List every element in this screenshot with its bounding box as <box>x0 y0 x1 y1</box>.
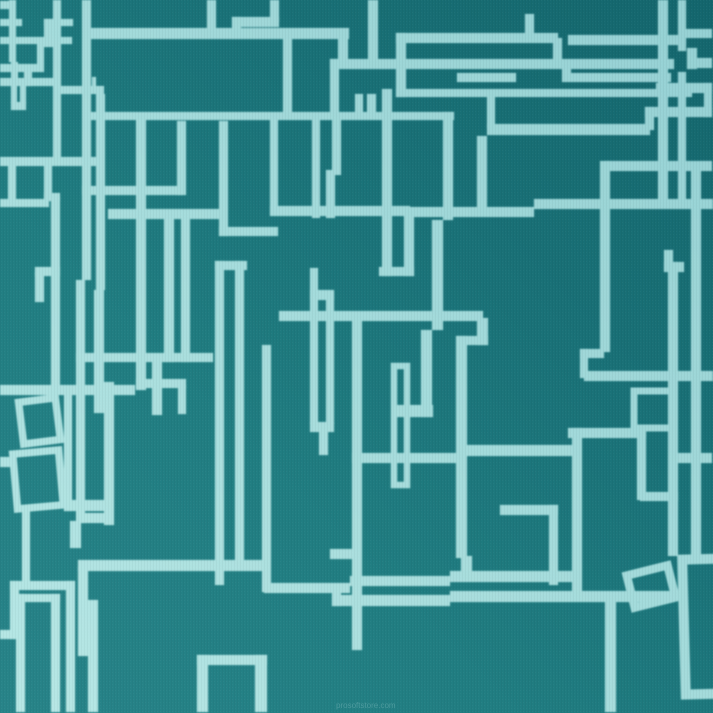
svg-text:prosoftstore.com: prosoftstore.com <box>336 701 396 710</box>
